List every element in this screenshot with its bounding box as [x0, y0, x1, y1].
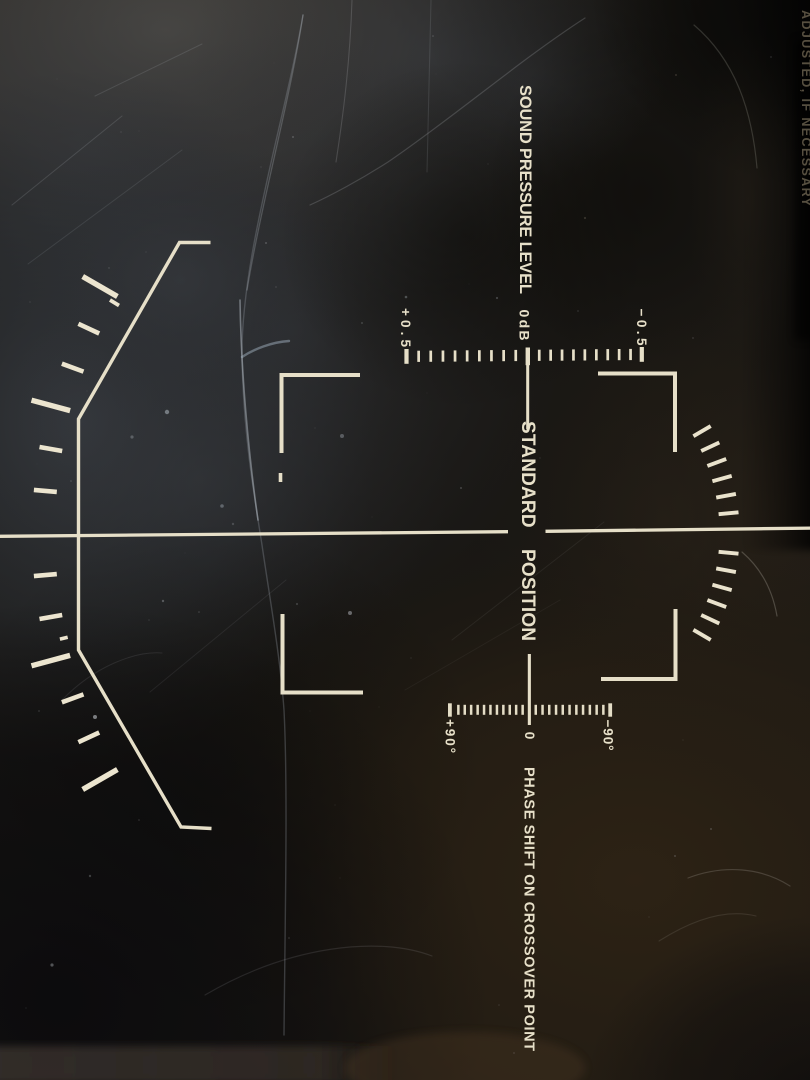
svg-text:+90°: +90°	[442, 719, 457, 753]
svg-text:PHASE SHIFT ON CROSSOVER POINT: PHASE SHIFT ON CROSSOVER POINT	[520, 767, 536, 1051]
svg-text:−90°: −90°	[601, 720, 616, 751]
svg-text:ADJUSTED, IF NECESSARY: ADJUSTED, IF NECESSARY	[799, 10, 810, 207]
svg-text:0: 0	[522, 732, 537, 740]
svg-text:0dB: 0dB	[517, 310, 533, 341]
svg-text:−0.5: −0.5	[634, 309, 649, 346]
svg-text:POSITION: POSITION	[517, 549, 538, 641]
svg-text:STANDARD: STANDARD	[517, 421, 538, 528]
svg-text:SOUND PRESSURE LEVEL: SOUND PRESSURE LEVEL	[516, 85, 534, 294]
